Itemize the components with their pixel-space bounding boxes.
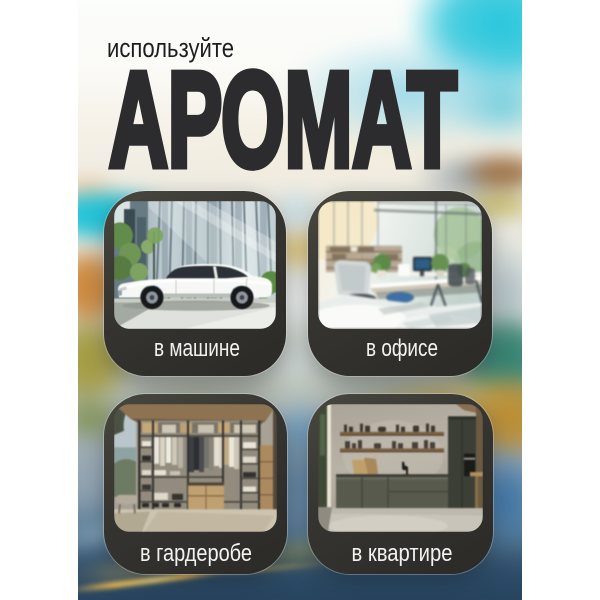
svg-text:в машине: в машине: [154, 335, 240, 361]
svg-text:в офисе: в офисе: [366, 335, 438, 361]
svg-text:АРОМАТ: АРОМАТ: [109, 44, 457, 185]
svg-text:в гардеробе: в гардеробе: [140, 540, 252, 566]
svg-text:в квартире: в квартире: [352, 540, 453, 566]
